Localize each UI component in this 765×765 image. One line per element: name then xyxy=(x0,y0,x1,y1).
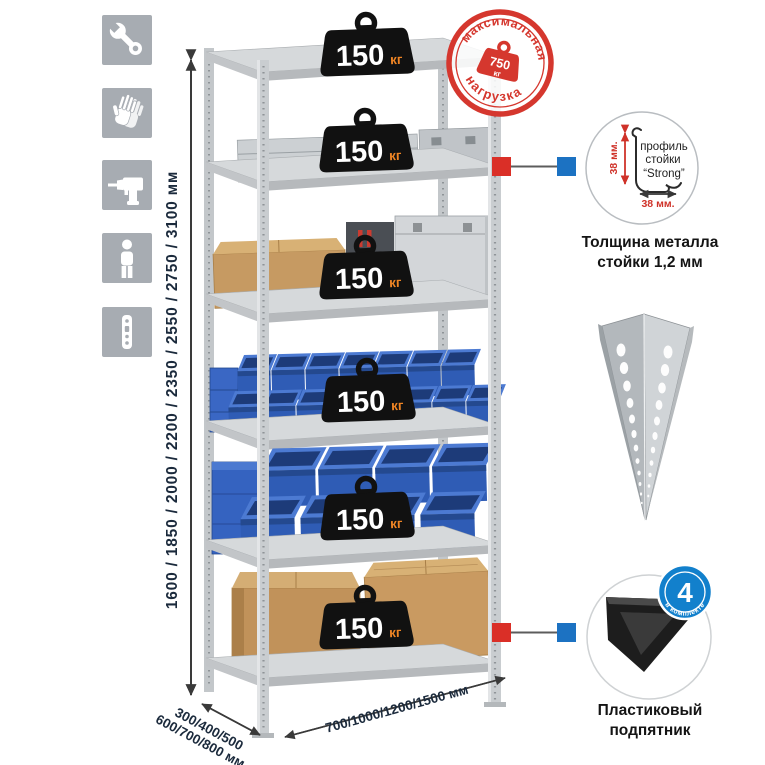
drill-icon xyxy=(102,160,152,210)
profile-thickness-caption: Толщина металла стойки 1,2 мм xyxy=(565,233,735,273)
profile-label-line1: профиль xyxy=(640,141,688,153)
post-profile-detail: 38 мм. 38 мм. профиль стойки “Strong” xyxy=(586,112,698,224)
product-infographic-shelving-rack: 150 кг 150 кг 150 кг 150 кг 150 кг xyxy=(0,0,765,765)
blue-marker-square xyxy=(557,623,576,642)
profile-dim-horizontal: 38 мм. xyxy=(641,198,674,210)
callout-connector-post-profile xyxy=(492,157,576,176)
load-value: 150 xyxy=(334,612,383,646)
load-value: 150 xyxy=(336,385,385,419)
load-weight-1: 150 кг xyxy=(319,13,415,77)
profile-label-line3: “Strong” xyxy=(643,168,685,180)
width-dimension: 700/1000/1200/1500 мм xyxy=(285,678,505,737)
load-unit: кг xyxy=(389,148,402,163)
load-weight-2: 150 кг xyxy=(318,109,414,173)
load-unit: кг xyxy=(390,516,403,531)
width-options-label: 700/1000/1200/1500 мм xyxy=(324,682,470,736)
load-unit: кг xyxy=(389,275,402,290)
load-unit: кг xyxy=(389,625,402,640)
plastic-foot-detail: 4 в комплекте xyxy=(587,565,712,699)
caption-line: стойки 1,2 мм xyxy=(565,253,735,273)
person-icon xyxy=(102,233,152,283)
gloves-icon xyxy=(102,88,152,138)
perforated-post-icon xyxy=(102,307,152,357)
badge-value: 4 xyxy=(677,577,693,608)
plastic-foot-caption: Пластиковый подпятник xyxy=(570,701,730,741)
load-value: 150 xyxy=(335,39,384,73)
caption-line: подпятник xyxy=(570,721,730,741)
load-value: 150 xyxy=(334,262,383,296)
quantity-badge: 4 в комплекте xyxy=(658,565,712,619)
load-unit: кг xyxy=(391,398,404,413)
wrench-icon xyxy=(102,15,152,65)
profile-dim-vertical: 38 мм. xyxy=(608,141,620,174)
max-load-stamp: максимальная нагрузка 750 кг xyxy=(438,1,562,125)
red-marker-square xyxy=(492,157,511,176)
load-value: 150 xyxy=(335,503,384,537)
blue-marker-square xyxy=(557,157,576,176)
load-unit: кг xyxy=(390,52,403,67)
profile-label-line2: стойки xyxy=(645,154,680,166)
height-options-label: 1600 / 1850 / 2000 / 2200 / 2350 / 2550 … xyxy=(164,171,181,609)
red-marker-square xyxy=(492,623,511,642)
depth-dimension: 300/400/500 600/700/800 мм xyxy=(153,698,260,765)
height-dimension: 1600 / 1850 / 2000 / 2200 / 2350 / 2550 … xyxy=(164,60,191,695)
caption-line: Пластиковый xyxy=(570,701,730,721)
load-value: 150 xyxy=(334,135,383,169)
callout-connector-foot xyxy=(492,623,576,642)
corner-post-image xyxy=(598,314,694,520)
caption-line: Толщина металла xyxy=(565,233,735,253)
